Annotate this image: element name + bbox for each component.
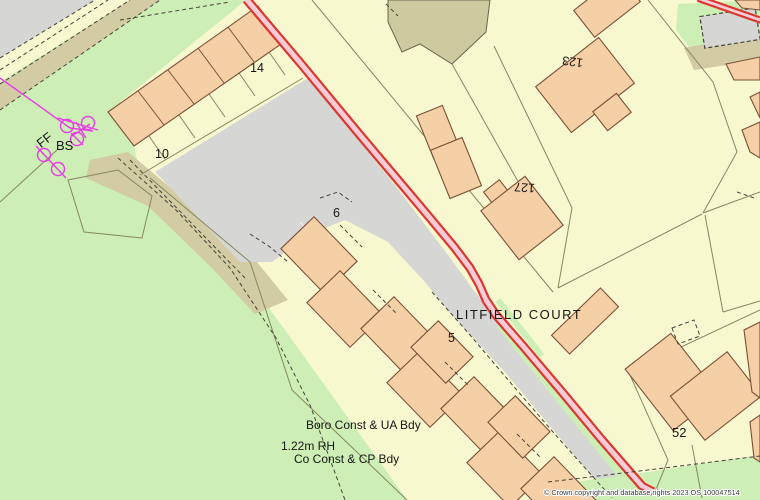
map-viewport: FF BS 14 10 9 123 127 5 52 LITFIELD COUR…: [0, 0, 760, 500]
house-number-9: 9: [333, 205, 340, 219]
boundary-annotation-admin: Boro Const & UA Bdy: [306, 418, 421, 432]
house-number-10: 10: [155, 147, 169, 161]
street-name-label: LITFIELD COURT: [456, 307, 582, 322]
house-number-123: 123: [561, 53, 583, 69]
boundary-annotation-parish: Co Const & CP Bdy: [294, 452, 399, 466]
copyright-notice: © Crown copyright and database rights 20…: [544, 488, 740, 497]
house-number-127: 127: [514, 180, 536, 195]
marker-label-bs: BS: [56, 138, 74, 153]
house-number-5: 5: [448, 331, 455, 345]
house-number-52: 52: [672, 425, 686, 440]
map-canvas[interactable]: FF BS 14 10 9 123 127 5 52 LITFIELD COUR…: [0, 0, 760, 500]
house-number-14: 14: [250, 61, 264, 75]
boundary-annotation-hedge: 1.22m RH: [281, 439, 335, 453]
